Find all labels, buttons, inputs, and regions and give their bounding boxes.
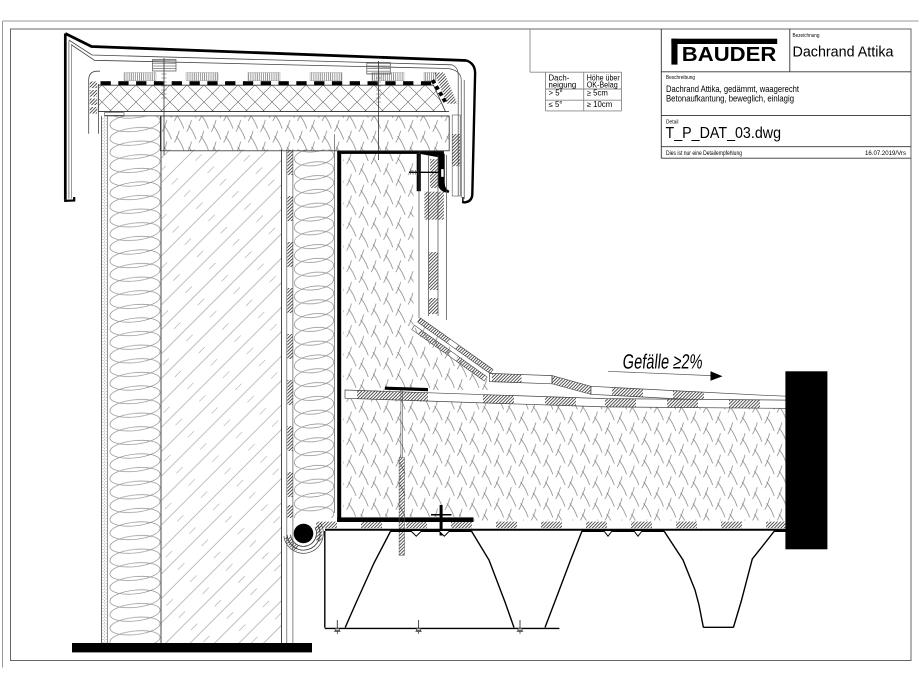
svg-text:Dachrand Attika: Dachrand Attika	[793, 45, 895, 61]
svg-text:Dies ist nur eine Detailempfeh: Dies ist nur eine Detailempfehlung	[666, 151, 742, 157]
svg-text:> 5°: > 5°	[549, 89, 563, 98]
svg-text:≥ 5cm: ≥ 5cm	[587, 89, 608, 98]
svg-text:T_P_DAT_03.dwg: T_P_DAT_03.dwg	[666, 125, 782, 142]
svg-text:≥ 10cm: ≥ 10cm	[587, 100, 613, 109]
svg-text:Betonaufkantung, beweglich, ei: Betonaufkantung, beweglich, einlagig	[666, 92, 794, 103]
svg-text:BAUDER: BAUDER	[682, 44, 777, 66]
svg-text:Beschreibung: Beschreibung	[666, 75, 695, 81]
svg-text:16.07.2019/Vrs: 16.07.2019/Vrs	[865, 151, 906, 157]
svg-text:≤ 5°: ≤ 5°	[549, 100, 563, 109]
svg-text:Gefälle ≥2%: Gefälle ≥2%	[621, 350, 703, 373]
svg-text:Bezeichnung: Bezeichnung	[793, 33, 820, 39]
